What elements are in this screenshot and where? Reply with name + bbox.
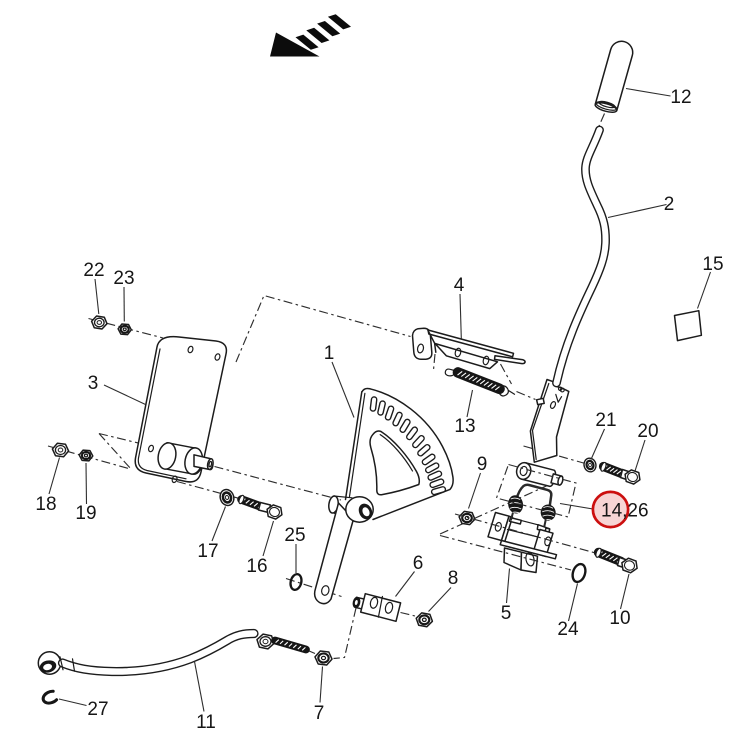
svg-text:27: 27	[87, 699, 108, 720]
svg-text:6: 6	[413, 553, 424, 574]
svg-text:2: 2	[664, 194, 675, 215]
svg-text:12: 12	[670, 87, 691, 108]
svg-text:15: 15	[702, 254, 723, 275]
svg-text:25: 25	[284, 525, 305, 546]
svg-text:22: 22	[83, 260, 104, 281]
svg-text:13: 13	[454, 416, 475, 437]
svg-text:4: 4	[454, 275, 465, 296]
svg-text:20: 20	[637, 421, 658, 442]
svg-text:19: 19	[75, 503, 96, 524]
svg-text:23: 23	[113, 268, 134, 289]
svg-text:1: 1	[324, 343, 335, 364]
svg-text:24: 24	[557, 619, 579, 640]
svg-text:7: 7	[314, 703, 325, 724]
svg-text:3: 3	[88, 373, 99, 394]
svg-text:9: 9	[477, 454, 488, 475]
svg-text:10: 10	[609, 608, 630, 629]
svg-text:5: 5	[501, 603, 512, 624]
svg-text:8: 8	[448, 568, 459, 589]
svg-text:21: 21	[595, 410, 616, 431]
svg-text:17: 17	[197, 541, 218, 562]
svg-text:11: 11	[196, 712, 216, 733]
svg-text:14,26: 14,26	[601, 501, 649, 522]
svg-text:18: 18	[35, 494, 56, 515]
svg-text:16: 16	[246, 556, 267, 577]
